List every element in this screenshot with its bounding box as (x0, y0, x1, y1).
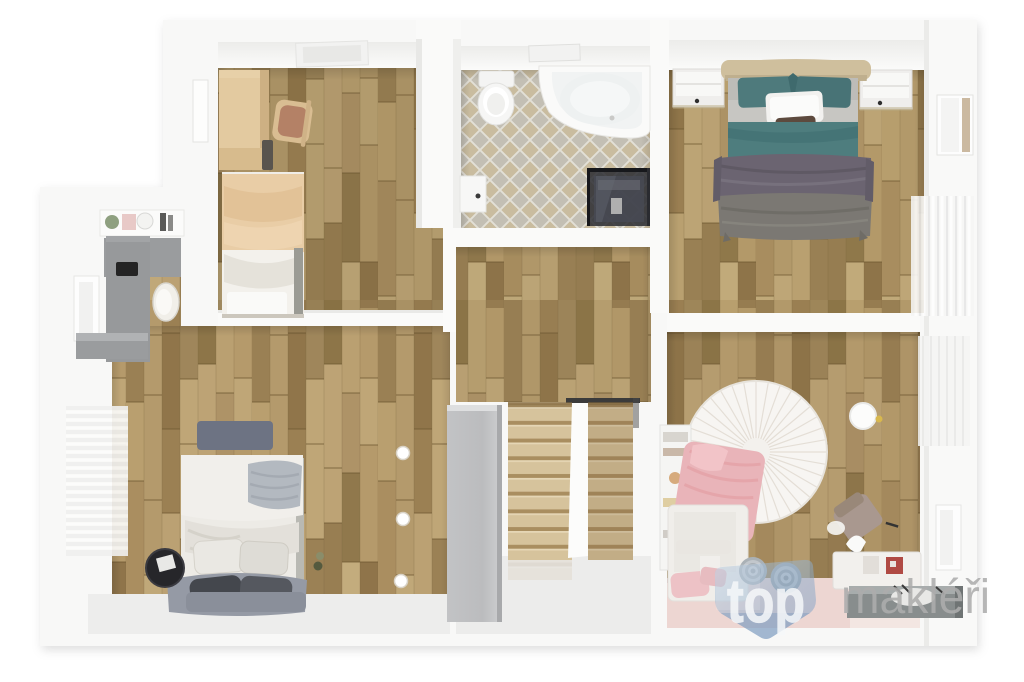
svg-text:makléři: makléři (841, 571, 990, 624)
svg-text:top: top (727, 567, 805, 635)
